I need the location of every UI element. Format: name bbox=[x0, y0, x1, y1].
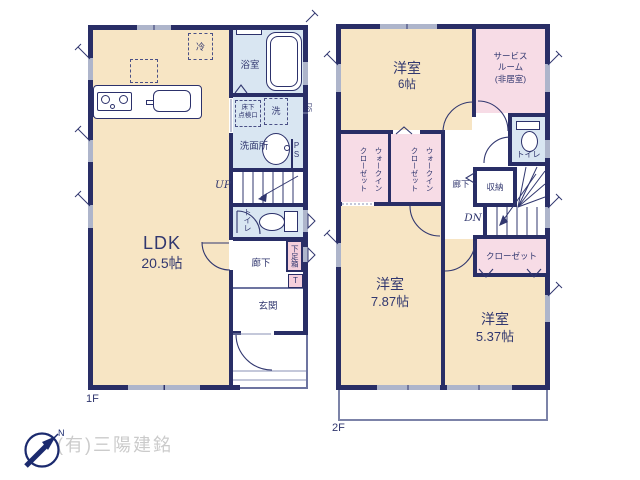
balcony bbox=[338, 390, 548, 421]
pipe-space-label: PS bbox=[292, 141, 300, 159]
window-marker bbox=[545, 64, 550, 92]
shoe-box-label: 下足箱 bbox=[291, 245, 299, 268]
window-marker bbox=[545, 295, 550, 322]
washroom-label: 洗面所 bbox=[233, 141, 275, 153]
wall-segment bbox=[374, 202, 445, 206]
wall-segment bbox=[508, 162, 550, 166]
wall-segment bbox=[336, 24, 550, 29]
wall-segment bbox=[336, 130, 393, 134]
hallway-2f-label: 廊下 bbox=[446, 179, 476, 190]
window-marker bbox=[545, 140, 550, 158]
ldk-size: 20.5帖 bbox=[117, 255, 207, 273]
window-marker bbox=[380, 24, 437, 29]
stairs-up-label: UP bbox=[213, 179, 233, 192]
wall-segment bbox=[233, 331, 241, 335]
window-marker bbox=[377, 385, 440, 390]
closet-box: クローゼット bbox=[473, 235, 550, 277]
shoe-box-t-label: T bbox=[293, 276, 298, 286]
bedroom-6-label: 洋室 6帖 bbox=[367, 60, 447, 92]
wic1-label: ウォークイン クローゼット bbox=[346, 137, 386, 201]
wall-segment bbox=[472, 29, 476, 117]
wall-segment bbox=[233, 168, 303, 172]
bedroom-537-size: 5.37帖 bbox=[455, 329, 535, 345]
ldk-label: LDK 20.5帖 bbox=[117, 232, 207, 272]
fridge-space: 冷 bbox=[188, 33, 213, 60]
window-marker bbox=[336, 64, 341, 92]
window-marker bbox=[303, 62, 308, 85]
storage-label: 収納 bbox=[486, 182, 503, 193]
duct-space-label: DS bbox=[305, 103, 312, 112]
window-marker bbox=[336, 243, 341, 267]
porch-steps bbox=[233, 334, 306, 380]
room-ldk bbox=[93, 30, 229, 385]
stairwell-1f bbox=[233, 172, 303, 203]
right-wall-vents-1f bbox=[308, 214, 315, 262]
dashed-square bbox=[130, 59, 158, 83]
window-marker bbox=[303, 247, 308, 262]
entrance-label: 玄関 bbox=[248, 301, 288, 313]
service-room-label: サービス ルーム (非居室) bbox=[477, 51, 544, 85]
bedroom-6-name: 洋室 bbox=[367, 60, 447, 78]
wall-segment bbox=[336, 202, 342, 206]
stove-knob bbox=[110, 104, 115, 109]
shoe-box-t: T bbox=[288, 274, 303, 288]
window-marker bbox=[545, 207, 550, 228]
bathtub-inner bbox=[270, 36, 298, 87]
washer-space: 洗 bbox=[264, 98, 288, 125]
company-credit: (有)三陽建銘 bbox=[57, 434, 173, 457]
wall-segment bbox=[88, 25, 308, 30]
bathroom-label: 浴室 bbox=[233, 60, 267, 72]
wall-segment bbox=[233, 203, 303, 207]
window-marker bbox=[447, 385, 512, 390]
floor-hatch: 床下 点検口 bbox=[235, 100, 261, 127]
wall-segment bbox=[88, 385, 240, 390]
stove-burner bbox=[119, 95, 128, 104]
wic2-label: ウォークイン クローゼット bbox=[397, 137, 437, 201]
wall-segment bbox=[508, 113, 550, 117]
window-marker bbox=[128, 385, 164, 390]
toilet-bowl-2f bbox=[521, 131, 538, 152]
hallway-1f-label: 廊下 bbox=[245, 258, 277, 270]
window-marker bbox=[303, 210, 308, 232]
floorplan-canvas: 収納 クローゼット 床下 点検口 洗 冷 下足箱 T 1F bbox=[0, 0, 640, 480]
bath-counter bbox=[236, 29, 262, 35]
ldk-name: LDK bbox=[117, 232, 207, 255]
window-marker bbox=[165, 385, 200, 390]
window-marker bbox=[137, 25, 171, 30]
toilet-tank-2f bbox=[516, 121, 540, 130]
toilet-2f-label: トイレ bbox=[512, 150, 545, 160]
floor1-label: 1F bbox=[86, 393, 99, 407]
window-marker bbox=[88, 58, 93, 80]
window-marker bbox=[88, 140, 93, 162]
bedroom-6-size: 6帖 bbox=[367, 78, 447, 92]
shoe-box: 下足箱 bbox=[286, 240, 303, 272]
wall-segment bbox=[274, 331, 303, 335]
porch-edge bbox=[240, 387, 308, 389]
wall-segment bbox=[233, 93, 303, 97]
wall-segment bbox=[441, 130, 445, 385]
bedroom-787-name: 洋室 bbox=[350, 276, 430, 294]
wall-segment bbox=[388, 134, 391, 202]
toilet-bowl-1f bbox=[259, 213, 285, 231]
sink-faucet bbox=[146, 100, 154, 105]
bedroom-787-size: 7.87帖 bbox=[350, 294, 430, 310]
toilet-1f-label: トイレ bbox=[243, 208, 251, 238]
bedroom-537-label: 洋室 5.37帖 bbox=[455, 311, 535, 345]
kitchen-sink bbox=[153, 90, 191, 112]
closet-label: クローゼット bbox=[486, 251, 537, 262]
bedroom-787-label: 洋室 7.87帖 bbox=[350, 276, 430, 310]
porch-edge bbox=[306, 335, 308, 389]
storage-box: 収納 bbox=[473, 167, 517, 207]
floor2-label: 2F bbox=[332, 422, 345, 436]
toilet-tank-1f bbox=[284, 211, 298, 232]
stairs-down-label: DN bbox=[461, 212, 485, 225]
stove-burner bbox=[101, 95, 110, 104]
bedroom-537-name: 洋室 bbox=[455, 311, 535, 329]
window-marker bbox=[88, 205, 93, 228]
basin-tap bbox=[284, 145, 290, 151]
